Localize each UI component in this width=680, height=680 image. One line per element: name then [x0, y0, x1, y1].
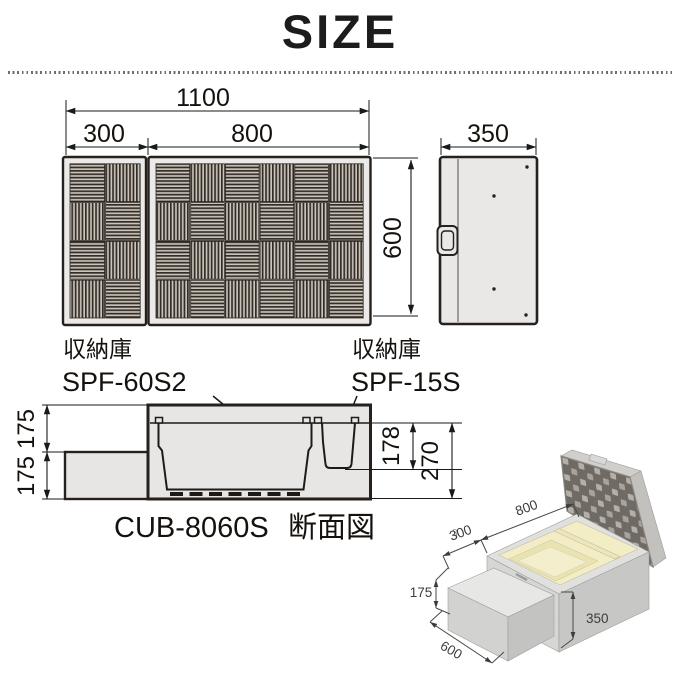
grille-square — [225, 203, 259, 241]
dim-3d-depth: 600 — [438, 638, 465, 662]
grille-square — [106, 241, 141, 279]
grille-square — [225, 164, 259, 202]
dim-3d-step: 175 — [410, 585, 433, 600]
dim-tick — [481, 540, 487, 553]
side-view: 350 — [438, 120, 538, 324]
grille-square — [330, 241, 364, 279]
grille-square — [225, 280, 259, 318]
grille-square — [191, 203, 225, 241]
dim-total-depth: 270 — [417, 441, 444, 481]
grille-square — [295, 241, 329, 279]
grille-square — [70, 203, 105, 241]
grille-square — [70, 280, 105, 318]
grille-square — [295, 280, 329, 318]
screw-dot — [524, 313, 527, 316]
grille-square — [260, 203, 294, 241]
grille-square — [260, 280, 294, 318]
screw-dot — [492, 194, 495, 197]
grille-square — [260, 241, 294, 279]
size-diagram-page: SIZE — [0, 0, 680, 680]
grille-square — [295, 203, 329, 241]
side-panel-handle-inner — [442, 231, 454, 250]
drawing-svg: 1100 300 800 600 350 — [0, 0, 680, 680]
screw-dot — [525, 165, 528, 168]
dim-3d-top: 800 — [513, 497, 539, 519]
grille-square — [156, 280, 190, 318]
dim-side-width: 350 — [467, 120, 509, 148]
right-unit-type: 収納庫 — [352, 336, 421, 362]
dim-total-width: 1100 — [176, 84, 230, 112]
dim-left-width: 300 — [83, 120, 125, 148]
left-unit-type: 収納庫 — [63, 336, 132, 362]
dim-right-width: 800 — [231, 120, 273, 148]
rim-hook — [156, 418, 163, 424]
section-model: CUB-8060S — [114, 512, 269, 544]
dim-tick — [436, 568, 448, 580]
dim-tick — [443, 556, 449, 569]
dim-3d-height: 350 — [586, 611, 609, 626]
grille-square — [156, 241, 190, 279]
grille-square — [330, 203, 364, 241]
dim-inner-depth: 178 — [378, 426, 405, 466]
rim-hook — [315, 418, 322, 424]
grille-square — [156, 164, 190, 202]
grille-square — [191, 164, 225, 202]
grille-square — [106, 164, 141, 202]
rim-hook — [352, 418, 359, 424]
screw-dot — [492, 287, 495, 290]
cross-section: 175 175 178 270 CUB-8060S 断面図 3 — [13, 405, 462, 544]
dim-height: 600 — [379, 217, 407, 259]
grille-square — [225, 241, 259, 279]
grille-square — [330, 164, 364, 202]
rim-hook — [303, 418, 310, 424]
grille-square — [70, 164, 105, 202]
grille-square — [191, 280, 225, 318]
product-illustration: 800 300 175 350 600 — [410, 450, 666, 663]
grille-square — [191, 241, 225, 279]
grille-square — [156, 203, 190, 241]
plan-view: 1100 300 800 600 — [63, 84, 418, 325]
grille-square — [70, 241, 105, 279]
section-caption: 断面図 — [288, 511, 375, 544]
right-unit-model: SPF-15S — [351, 367, 461, 397]
grille-square — [106, 280, 141, 318]
dim-3d-left: 300 — [447, 522, 473, 544]
dim-tick — [430, 611, 442, 622]
dim-line-left-edge — [443, 540, 481, 556]
lid-weave-cell — [653, 579, 659, 587]
left-unit-model: SPF-60S2 — [62, 367, 187, 397]
grille-square — [106, 203, 141, 241]
grille-square — [330, 280, 364, 318]
grille-square — [295, 164, 329, 202]
grille-square — [260, 164, 294, 202]
section-step-block — [65, 452, 148, 499]
dim-upper-step: 175 — [13, 409, 40, 449]
section-body — [148, 405, 371, 499]
dim-lower-step: 175 — [13, 456, 40, 496]
